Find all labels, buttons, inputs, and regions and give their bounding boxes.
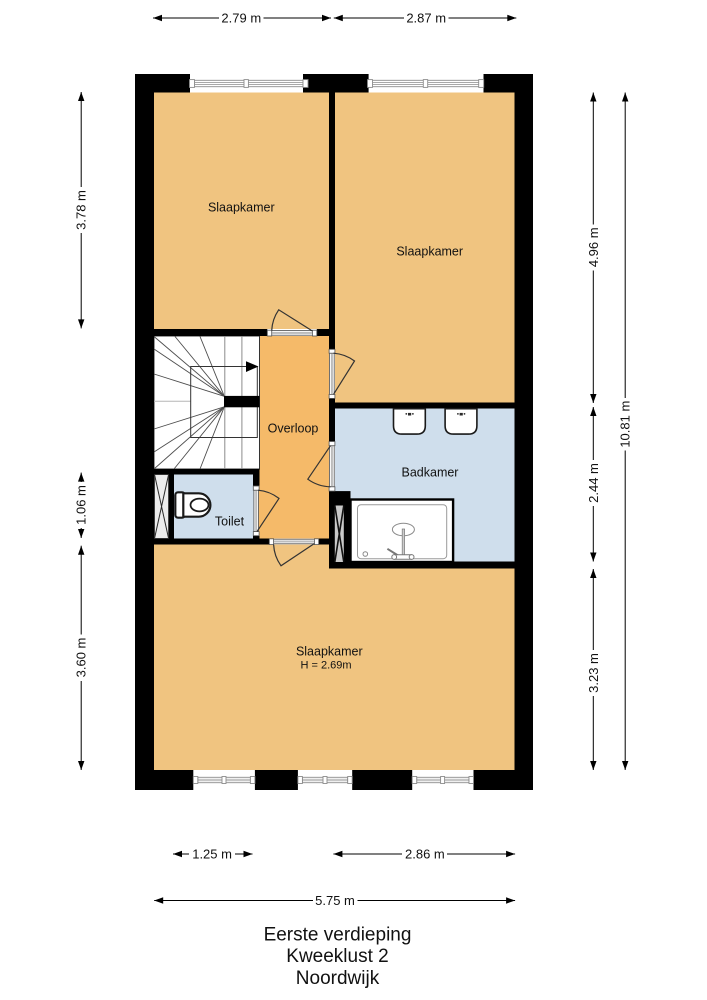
svg-text:2.44 m: 2.44 m: [586, 463, 601, 503]
svg-text:2.86 m: 2.86 m: [405, 847, 445, 862]
svg-text:1.25 m: 1.25 m: [192, 847, 232, 862]
svg-text:Slaapkamer: Slaapkamer: [296, 645, 363, 659]
svg-text:4.96 m: 4.96 m: [586, 227, 601, 267]
svg-text:Eerste verdieping: Eerste verdieping: [264, 925, 412, 946]
svg-text:H = 2.69m: H = 2.69m: [300, 660, 351, 672]
svg-text:Overloop: Overloop: [268, 422, 319, 436]
svg-text:5.75 m: 5.75 m: [315, 893, 355, 908]
svg-text:Kweeklust 2: Kweeklust 2: [286, 946, 388, 967]
svg-text:3.78 m: 3.78 m: [74, 190, 89, 230]
svg-text:3.60 m: 3.60 m: [74, 638, 89, 678]
svg-text:2.79 m: 2.79 m: [221, 11, 261, 26]
svg-text:10.81 m: 10.81 m: [618, 401, 633, 448]
svg-text:Noordwijk: Noordwijk: [296, 968, 380, 989]
svg-text:Slaapkamer: Slaapkamer: [396, 245, 463, 259]
svg-text:2.87 m: 2.87 m: [406, 11, 446, 26]
svg-text:1.06 m: 1.06 m: [74, 485, 89, 525]
svg-text:Toilet: Toilet: [215, 515, 245, 529]
svg-text:Badkamer: Badkamer: [402, 466, 459, 480]
svg-text:3.23 m: 3.23 m: [586, 653, 601, 693]
svg-text:Slaapkamer: Slaapkamer: [208, 201, 275, 215]
